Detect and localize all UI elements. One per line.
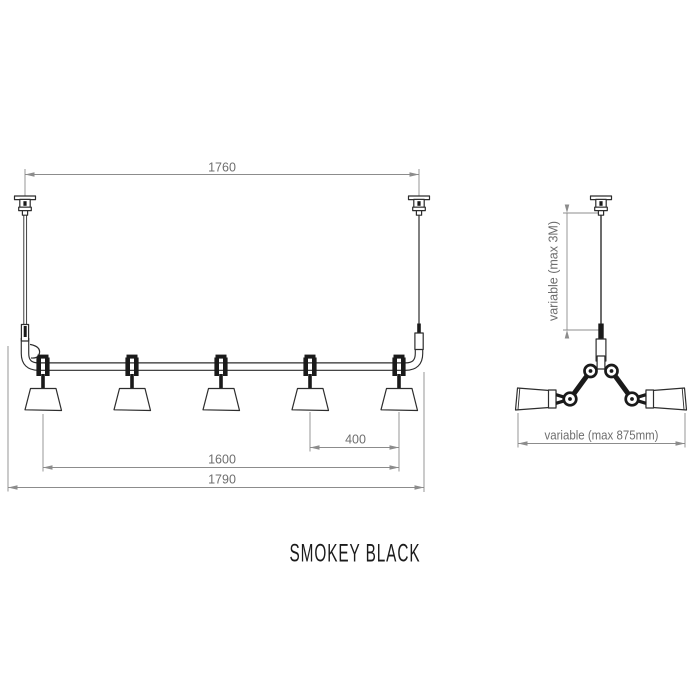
dim-head-spread-value: variable (max 875mm)	[545, 429, 659, 443]
suspension-rod-left	[21, 216, 28, 342]
joint-lower-left	[564, 393, 577, 406]
dimension-head-spread: variable (max 875mm)	[518, 413, 685, 448]
lamp-technical-drawing: 1760 400 1600 1790	[0, 0, 700, 700]
suspension-cable-right	[415, 216, 423, 350]
side-head-right	[636, 388, 687, 410]
product-name-label: SMOKEY BLACK	[290, 540, 421, 568]
ceiling-canopy-left	[15, 196, 36, 215]
technical-drawing-sheet: 1760 400 1600 1790	[0, 0, 700, 700]
dim-suspension-span-value: 1760	[208, 161, 236, 175]
dim-overall-width-value: 1790	[208, 473, 236, 487]
dimension-drop-height: variable (max 3M)	[547, 205, 601, 339]
dim-drop-height-value: variable (max 3M)	[547, 221, 561, 321]
dimension-lamp-spacing: 400	[310, 412, 399, 472]
dim-lamp-spacing-value: 400	[345, 433, 366, 447]
dim-lamp-span-value: 1600	[208, 453, 236, 467]
tube-assembly	[25, 338, 419, 367]
side-ceiling-canopy	[591, 196, 612, 215]
dimension-suspension-span: 1760	[25, 161, 419, 197]
ceiling-canopy-right	[409, 196, 430, 215]
joint-top-right	[606, 365, 618, 377]
joint-top-left	[585, 365, 597, 377]
side-head-left	[516, 388, 567, 410]
front-view: 1760 400 1600 1790	[8, 161, 430, 493]
joint-lower-right	[626, 393, 639, 406]
side-view: variable (max 3M) variable (max 875mm)	[516, 196, 687, 448]
